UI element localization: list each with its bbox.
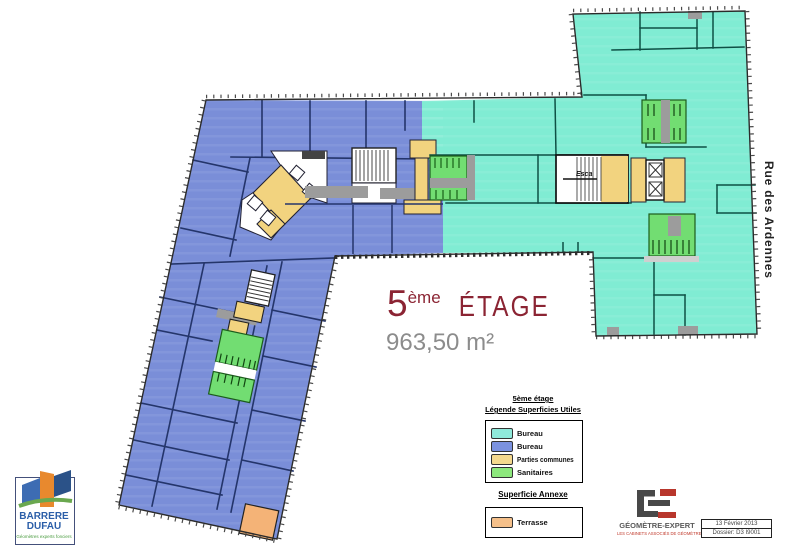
- svg-text:Esca: Esca: [576, 171, 592, 178]
